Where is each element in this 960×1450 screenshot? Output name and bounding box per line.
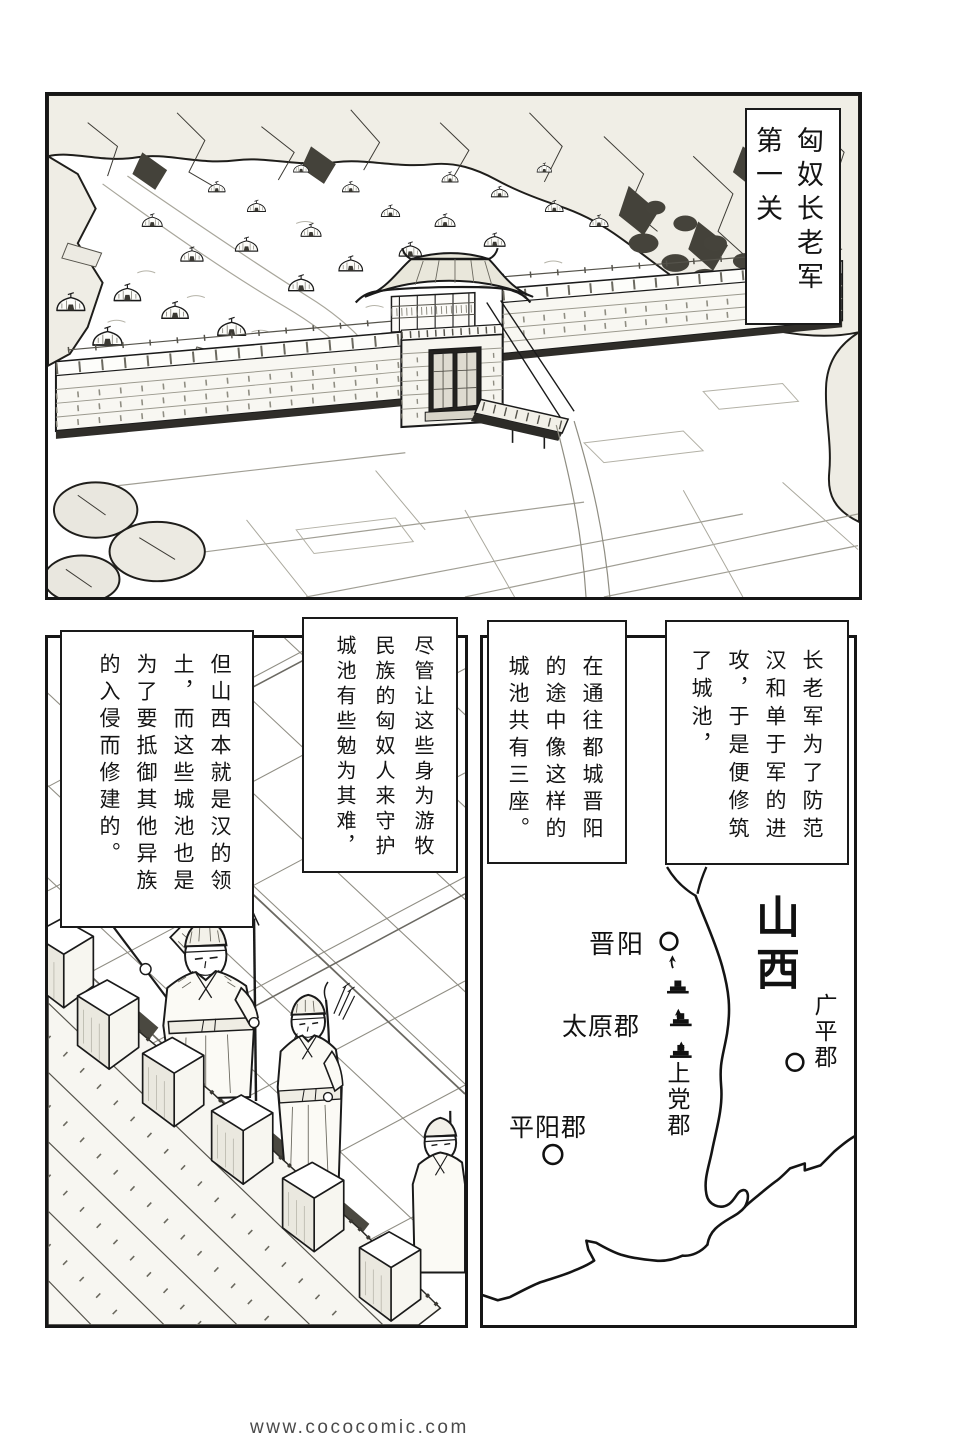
map-label-jinyang: 晋阳 [589,924,645,961]
map-label-pingyang: 平阳郡 [509,1108,587,1144]
map-label-guangping: 广平郡 [807,993,841,1071]
route-arrow-icon [669,955,676,968]
fortress-icon [670,1045,692,1058]
fortress-icon [670,1013,692,1026]
city-marker-guangping [787,1054,804,1071]
map-label-taiyuan: 太原郡 [562,1007,640,1043]
watermark: www.cococomic.com [250,1417,469,1439]
narration-box-nomads-guard: 尽管让这些身为游牧民族的匈奴人来守护城池有些勉为其难， [302,617,458,873]
manga-page: 匈奴长老军第一关 [0,0,960,1450]
map-label-shangdang: 上党郡 [660,1061,694,1139]
narration-box-han-territory: 但山西本就是汉的领土，而这些城池也是为了要抵御其他异族的入侵而修建的。 [60,630,254,928]
city-marker-jinyang [661,933,678,950]
narration-box-build-walls: 长老军为了防范汉和单于军的进攻，于是便修筑了城池， [665,620,849,865]
city-marker-pingyang [544,1145,563,1164]
fortress-icon [667,981,689,994]
fortress-wall-illustration [48,95,859,597]
bubble-tail [667,867,706,896]
chapter-caption-box: 匈奴长老军第一关 [745,108,841,325]
top-panel [45,92,862,600]
narration-box-three-forts: 在通往都城晋阳的途中像这样的城池共有三座。 [487,620,627,864]
region-label-shanxi: 山西 [741,894,805,998]
